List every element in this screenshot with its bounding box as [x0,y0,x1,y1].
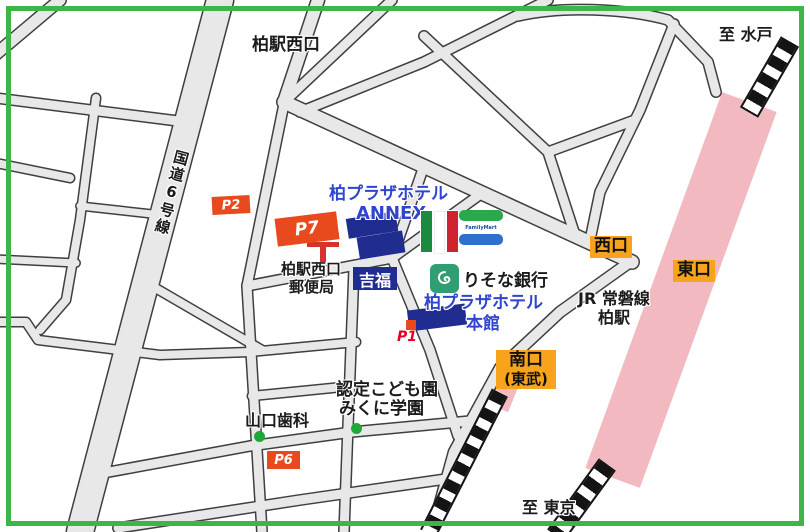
parking-p1-marker: P1 [397,330,417,345]
yamaguchi-dental-label: 山口歯科 [245,412,309,430]
jr-station-label: 柏駅 [598,309,630,327]
resona-bank-label: りそな銀行 [463,272,548,291]
hotel-annex-label-line1: 柏プラザホテル [329,185,448,204]
mikuni-label-line1: 認定こども園 [336,381,438,400]
to-tokyo-label: 至 東京 [522,499,576,517]
south-exit-line2: (東武) [500,371,552,388]
south-exit-badge: 南口 (東武) [496,350,556,389]
parking-p6-marker: P6 [266,450,301,470]
parking-p1-square-icon [406,320,416,330]
post-office-label-line2: 郵便局 [289,279,334,296]
hotel-main-label-line2: 本館 [466,315,500,334]
road [247,104,284,286]
post-office-label-line1: 柏駅西口 [281,261,341,278]
road [118,479,446,528]
road [0,259,76,263]
familymart-sign-icon: FamilyMart [459,210,503,245]
road [80,206,152,214]
to-mito-label: 至 水戸 [719,26,773,44]
west-exit-badge: 西口 [590,236,632,258]
jr-line-label: JR 常磐線 [578,290,650,308]
road [40,98,96,330]
access-map: 柏駅西口 至 水戸 国道6号線 P2 P7 P6 P1 柏駅西口 郵便局 柏プラ… [0,0,810,532]
west-exit-street-label: 柏駅西口 [252,36,320,55]
mikuni-label-line2: みくに学園 [339,400,424,419]
south-exit-line1: 南口 [500,351,552,371]
hotel-main-label-line1: 柏プラザホテル [424,294,543,313]
familymart-blue-bar [459,234,503,245]
italian-flag-icon [420,210,459,255]
parking-p2-marker: P2 [212,195,251,215]
resona-logo-icon [430,264,459,293]
mikuni-dot-icon [351,423,362,434]
road [0,0,60,54]
road [518,10,716,92]
familymart-label: FamilyMart [465,225,497,231]
hotel-annex-label-line2: ANNEX [356,204,426,224]
road [518,10,716,92]
east-exit-badge: 東口 [673,260,715,282]
yamaguchi-dental-dot-icon [254,431,265,442]
familymart-green-bar [459,210,503,221]
yoshifuku-marker: 吉福 [353,267,397,290]
